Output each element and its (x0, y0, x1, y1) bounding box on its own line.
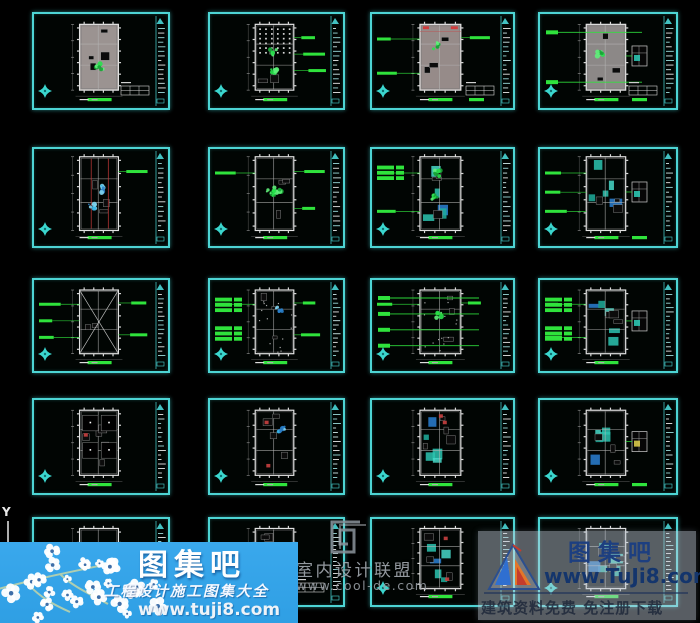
drawing-r1c1[interactable] (32, 12, 170, 110)
compass-icon (376, 347, 390, 361)
drawing-r4c4[interactable] (538, 398, 678, 495)
floor-plan-graphic (540, 149, 676, 246)
drawing-r2c1[interactable] (32, 147, 170, 248)
floor-plan-graphic (34, 14, 168, 108)
floor-plan-graphic (540, 280, 676, 371)
compass-icon (214, 347, 228, 361)
drawing-r2c2[interactable] (208, 147, 345, 248)
ucs-axis-label: Y (1, 505, 11, 519)
drawing-r4c1[interactable] (32, 398, 170, 495)
compass-icon (38, 347, 52, 361)
floor-plan-graphic (372, 280, 513, 371)
watermark-right-divider (484, 592, 688, 594)
watermark-left-banner: 图集吧 工程设计施工图集大全 www.tuji8.com (0, 542, 298, 623)
watermark-right-panel: 图集吧 www.TuJi8.com 建筑资料免费 免注册下载 (478, 531, 696, 620)
compass-icon (214, 84, 228, 98)
compass-icon (376, 84, 390, 98)
compass-icon (38, 222, 52, 236)
floor-plan-graphic (210, 149, 343, 246)
floor-plan-graphic (540, 400, 676, 493)
floor-plan-graphic (210, 14, 343, 108)
floor-plan-graphic (540, 14, 676, 108)
cool-de-spiral-logo-icon (326, 519, 386, 557)
compass-icon (544, 222, 558, 236)
drawing-r4c3[interactable] (370, 398, 515, 495)
floor-plan-graphic (372, 400, 513, 493)
tuji8-mountain-logo-icon (486, 543, 544, 593)
watermark-center: 室内设计联盟 www.cool-de.com (294, 517, 478, 605)
drawing-r2c4[interactable] (538, 147, 678, 248)
compass-icon (214, 469, 228, 483)
drawing-r3c2[interactable] (208, 278, 345, 373)
drawing-r3c3[interactable] (370, 278, 515, 373)
floor-plan-graphic (210, 280, 343, 371)
watermark-left-title: 图集吧 (138, 542, 246, 584)
compass-icon (544, 347, 558, 361)
floor-plan-graphic (34, 149, 168, 246)
watermark-right-title: 图集吧 (568, 533, 658, 567)
drawing-r1c4[interactable] (538, 12, 678, 110)
compass-icon (544, 84, 558, 98)
watermark-right-url[interactable]: www.TuJi8.com (544, 564, 700, 588)
compass-icon (376, 222, 390, 236)
drawing-r3c4[interactable] (538, 278, 678, 373)
floor-plan-graphic (210, 400, 343, 493)
watermark-center-url[interactable]: www.cool-de.com (296, 578, 428, 593)
compass-icon (214, 222, 228, 236)
drawing-r4c2[interactable] (208, 398, 345, 495)
watermark-left-url[interactable]: www.tuji8.com (138, 600, 280, 620)
drawing-r3c1[interactable] (32, 278, 170, 373)
drawing-r1c2[interactable] (208, 12, 345, 110)
floor-plan-graphic (372, 149, 513, 246)
drawing-r2c3[interactable] (370, 147, 515, 248)
floor-plan-graphic (372, 14, 513, 108)
floor-plan-graphic (34, 400, 168, 493)
floor-plan-graphic (34, 280, 168, 371)
watermark-right-tagline: 建筑资料免费 免注册下载 (481, 597, 663, 618)
compass-icon (38, 469, 52, 483)
compass-icon (38, 84, 52, 98)
drawing-r1c3[interactable] (370, 12, 515, 110)
compass-icon (376, 469, 390, 483)
cad-canvas: Y 图集吧 工程设计施工图集大全 www.tuji8.com 室内设计联盟 ww… (0, 0, 700, 623)
watermark-left-subtitle: 工程设计施工图集大全 (104, 580, 269, 601)
compass-icon (544, 469, 558, 483)
